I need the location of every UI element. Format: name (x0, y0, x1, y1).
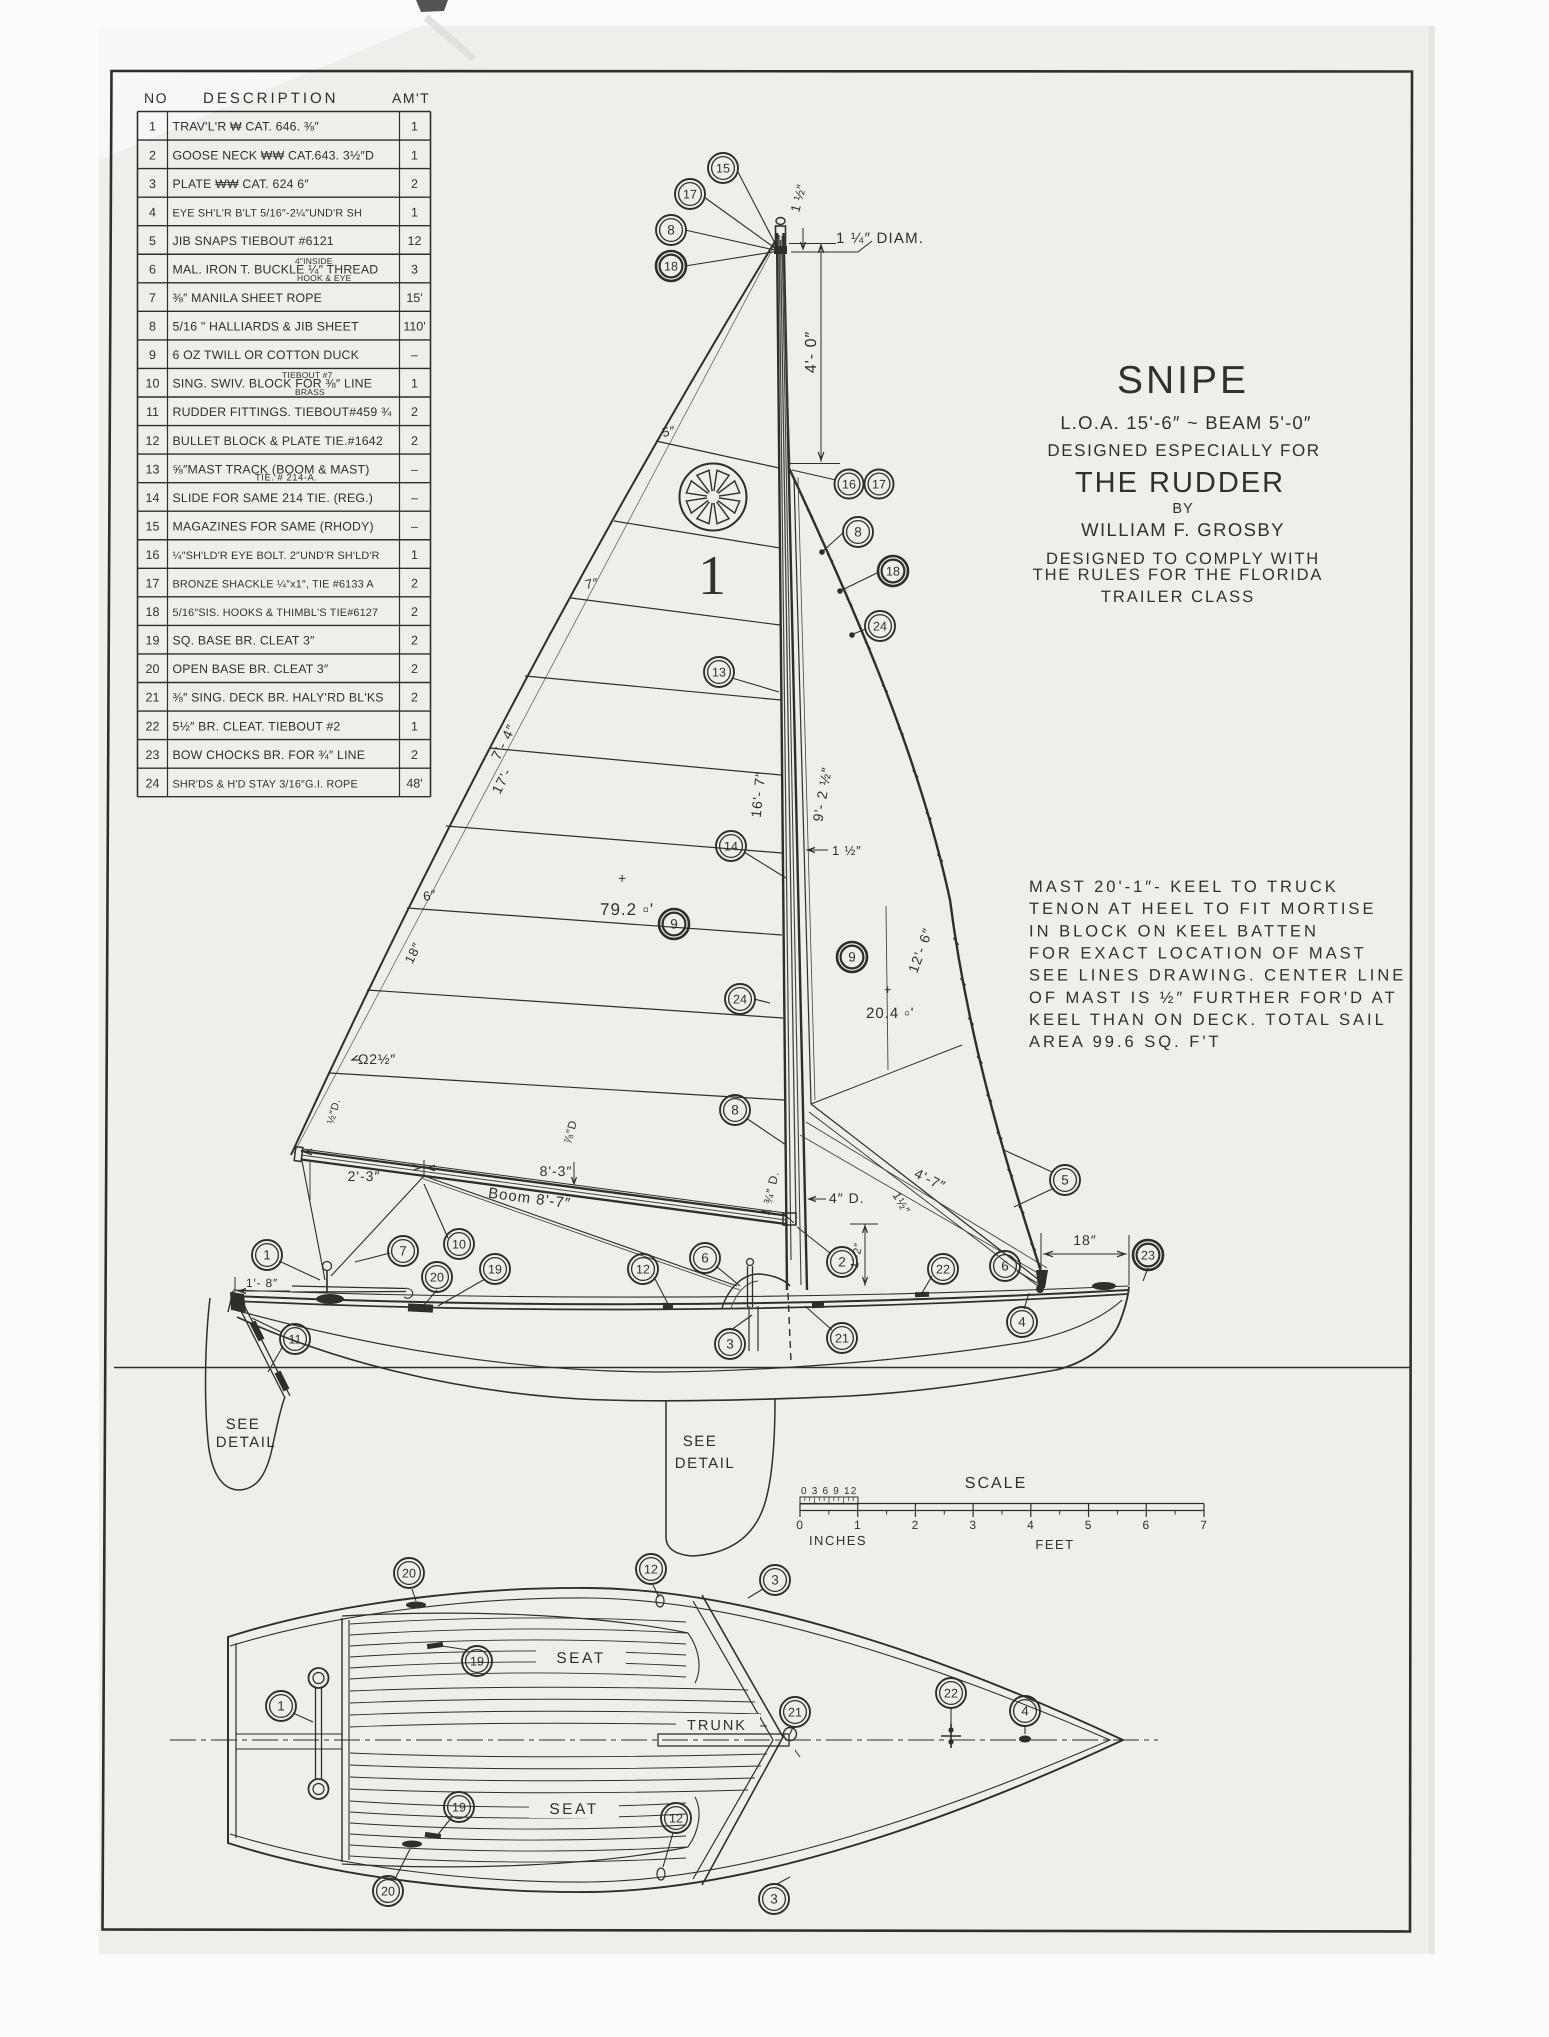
svg-text:1: 1 (411, 548, 418, 562)
svg-text:5: 5 (1085, 1518, 1092, 1532)
svg-text:SEE LINES DRAWING. CENTER LINE: SEE LINES DRAWING. CENTER LINE (1029, 967, 1406, 985)
svg-text:8: 8 (149, 320, 156, 334)
svg-text:19: 19 (470, 1655, 484, 1669)
svg-text:3: 3 (149, 177, 156, 191)
svg-text:8: 8 (667, 223, 675, 238)
svg-text:2: 2 (838, 1255, 846, 1270)
svg-text:21: 21 (146, 691, 160, 705)
svg-text:18: 18 (886, 565, 900, 579)
svg-text:14: 14 (146, 491, 160, 505)
svg-text:SING. SWIV. BLOCK FOR ⅜″ LINE: SING. SWIV. BLOCK FOR ⅜″ LINE (173, 377, 373, 391)
svg-text:23: 23 (146, 748, 160, 762)
svg-text:TRUNK: TRUNK (687, 1718, 747, 1734)
svg-text:1 ½″: 1 ½″ (832, 843, 862, 858)
svg-text:9: 9 (670, 917, 678, 932)
svg-text:FEET: FEET (1035, 1537, 1074, 1552)
svg-text:BOW CHOCKS BR. FOR ¾″ LINE: BOW CHOCKS BR. FOR ¾″ LINE (173, 748, 366, 762)
svg-text:DETAIL: DETAIL (216, 1434, 276, 1451)
svg-text:AREA 99.6 SQ. F'T: AREA 99.6 SQ. F'T (1029, 1033, 1222, 1051)
svg-text:6: 6 (149, 262, 156, 276)
svg-text:5″: 5″ (661, 423, 677, 440)
svg-text:24: 24 (873, 620, 887, 634)
svg-text:2: 2 (411, 405, 418, 419)
svg-text:MAST 20'-1″- KEEL TO TRUCK: MAST 20'-1″- KEEL TO TRUCK (1029, 878, 1339, 896)
svg-text:SHR'DS & H'D STAY 3/16″G.I. RO: SHR'DS & H'D STAY 3/16″G.I. ROPE (173, 778, 358, 790)
svg-text:13: 13 (146, 462, 160, 476)
svg-text:L.O.A. 15'-6″ ~ BEAM 5'-0″: L.O.A. 15'-6″ ~ BEAM 5'-0″ (1060, 412, 1311, 433)
svg-text:1: 1 (149, 120, 156, 134)
svg-text:MAGAZINES FOR SAME (RHODY): MAGAZINES FOR SAME (RHODY) (173, 519, 374, 533)
svg-text:2: 2 (411, 691, 418, 705)
svg-text:WILLIAM F. GROSBY: WILLIAM F. GROSBY (1081, 519, 1285, 540)
svg-text:2: 2 (411, 434, 418, 448)
svg-text:⅜″ SING. DECK BR. HALY'RD BL'K: ⅜″ SING. DECK BR. HALY'RD BL'KS (173, 691, 384, 705)
svg-text:DETAIL: DETAIL (675, 1455, 735, 1472)
svg-text:⅜″ MANILA SHEET ROPE: ⅜″ MANILA SHEET ROPE (173, 291, 323, 305)
svg-text:IN BLOCK ON KEEL BATTEN: IN BLOCK ON KEEL BATTEN (1029, 922, 1319, 940)
svg-text:20: 20 (381, 1885, 395, 1899)
svg-text:18: 18 (664, 260, 678, 274)
svg-text:19: 19 (146, 634, 160, 648)
svg-text:15: 15 (146, 519, 160, 533)
svg-text:11: 11 (146, 405, 159, 419)
svg-text:21: 21 (835, 1332, 849, 1346)
svg-text:Ω2½″: Ω2½″ (358, 1051, 396, 1067)
svg-text:8'-3″: 8'-3″ (540, 1163, 573, 1179)
svg-text:SEE: SEE (226, 1416, 261, 1433)
svg-text:TIE. # 214-A.: TIE. # 214-A. (255, 473, 317, 484)
svg-text:15: 15 (716, 162, 730, 176)
svg-text:10: 10 (452, 1238, 466, 1252)
svg-text:1: 1 (854, 1518, 861, 1532)
svg-text:KEEL THAN ON DECK. TOTAL SAIL: KEEL THAN ON DECK. TOTAL SAIL (1029, 1011, 1387, 1029)
svg-text:16: 16 (146, 548, 160, 562)
svg-text:9: 9 (848, 950, 856, 965)
svg-text:4: 4 (1027, 1518, 1034, 1532)
svg-text:2: 2 (411, 605, 418, 619)
svg-text:TRAV'L'R ₩ CAT. 646. ⅜″: TRAV'L'R ₩ CAT. 646. ⅜″ (173, 120, 320, 134)
svg-text:TRAILER CLASS: TRAILER CLASS (1101, 588, 1255, 606)
svg-text:–: – (411, 462, 418, 476)
svg-text:20: 20 (146, 662, 160, 676)
svg-text:3: 3 (726, 1337, 734, 1352)
svg-text:SCALE: SCALE (965, 1475, 1027, 1492)
svg-text:1: 1 (698, 545, 726, 607)
svg-text:19: 19 (488, 1263, 502, 1277)
svg-text:THE RULES FOR THE FLORIDA: THE RULES FOR THE FLORIDA (1033, 566, 1323, 584)
svg-text:HOOK & EYE: HOOK & EYE (297, 273, 352, 283)
svg-text:5: 5 (1061, 1173, 1069, 1188)
svg-text:DESIGNED ESPECIALLY FOR: DESIGNED ESPECIALLY FOR (1047, 441, 1320, 460)
svg-text:2: 2 (149, 148, 156, 162)
svg-text:7: 7 (1200, 1518, 1207, 1532)
svg-text:7″: 7″ (584, 575, 600, 592)
svg-text:12: 12 (636, 1263, 650, 1277)
svg-text:GOOSE NECK ₩₩ CAT.643. 3½″D: GOOSE NECK ₩₩ CAT.643. 3½″D (173, 148, 375, 162)
svg-text:INCHES: INCHES (809, 1533, 867, 1548)
svg-text:SEE: SEE (683, 1433, 718, 1450)
svg-text:PLATE ₩₩ CAT. 624 6″: PLATE ₩₩ CAT. 624 6″ (173, 177, 310, 191)
svg-text:+: + (884, 982, 892, 997)
svg-text:2: 2 (411, 662, 418, 676)
svg-text:1: 1 (411, 719, 418, 733)
svg-text:SEAT: SEAT (549, 1801, 598, 1818)
svg-text:5½″ BR. CLEAT. TIEBOUT #2: 5½″ BR. CLEAT. TIEBOUT #2 (173, 719, 341, 733)
svg-text:2: 2 (912, 1518, 919, 1532)
svg-text:22: 22 (944, 1687, 958, 1701)
svg-text:2'-3″: 2'-3″ (348, 1168, 381, 1184)
svg-text:12: 12 (644, 1563, 658, 1577)
svg-text:THE RUDDER: THE RUDDER (1075, 467, 1285, 499)
svg-text:24: 24 (146, 776, 160, 790)
svg-text:DESCRIPTION: DESCRIPTION (203, 90, 339, 107)
svg-text:17: 17 (872, 478, 886, 492)
svg-text:7: 7 (399, 1244, 407, 1259)
svg-text:+: + (618, 870, 627, 886)
svg-text:17: 17 (146, 577, 160, 591)
svg-text:12: 12 (408, 234, 422, 248)
svg-text:23: 23 (1141, 1249, 1155, 1263)
svg-text:SEAT: SEAT (556, 1650, 605, 1667)
svg-text:2: 2 (411, 634, 418, 648)
svg-text:–: – (411, 491, 418, 505)
svg-text:2: 2 (411, 748, 418, 762)
svg-text:22: 22 (936, 1263, 950, 1277)
svg-text:20.4 ▫': 20.4 ▫' (866, 1005, 915, 1022)
svg-text:9: 9 (149, 348, 156, 362)
svg-text:FOR EXACT LOCATION OF MAST: FOR EXACT LOCATION OF MAST (1029, 944, 1367, 962)
svg-text:1: 1 (411, 377, 418, 391)
svg-text:18: 18 (146, 605, 160, 619)
svg-text:15': 15' (406, 291, 422, 305)
svg-text:24: 24 (733, 993, 747, 1007)
svg-text:20: 20 (430, 1271, 444, 1285)
svg-text:10: 10 (146, 377, 160, 391)
svg-text:48': 48' (406, 776, 422, 790)
svg-text:2: 2 (411, 577, 418, 591)
svg-text:12: 12 (669, 1812, 683, 1826)
svg-text:1'- 8″: 1'- 8″ (246, 1276, 278, 1290)
svg-text:SNIPE: SNIPE (1117, 359, 1249, 402)
svg-text:8: 8 (854, 525, 862, 540)
svg-text:6: 6 (701, 1251, 709, 1266)
svg-text:8: 8 (731, 1103, 739, 1118)
svg-text:BRASS: BRASS (295, 387, 325, 397)
svg-text:BULLET BLOCK & PLATE TIE.#164: BULLET BLOCK & PLATE TIE.#1642 (173, 434, 383, 448)
svg-text:4'- 0″: 4'- 0″ (803, 331, 820, 373)
svg-text:SQ. BASE BR. CLEAT 3″: SQ. BASE BR. CLEAT 3″ (173, 634, 315, 648)
svg-text:5/16″SIS. HOOKS & THIMBL'S TIE: 5/16″SIS. HOOKS & THIMBL'S TIE#6127 (173, 607, 379, 619)
svg-text:18″: 18″ (1073, 1232, 1097, 1248)
svg-text:BRONZE SHACKLE ¼″x1″, TIE #613: BRONZE SHACKLE ¼″x1″, TIE #6133 A (173, 579, 375, 591)
svg-text:4: 4 (1021, 1704, 1029, 1719)
svg-text:3: 3 (771, 1573, 779, 1588)
svg-text:–: – (411, 519, 418, 533)
svg-text:EYE SH'L'R B'LT 5/16″-2¼″UND'R: EYE SH'L'R B'LT 5/16″-2¼″UND'R SH (173, 207, 363, 219)
svg-text:17: 17 (683, 188, 697, 202)
svg-text:1: 1 (411, 148, 418, 162)
svg-text:20: 20 (402, 1567, 416, 1581)
svg-text:0 3 6 9 12: 0 3 6 9 12 (801, 1486, 857, 1497)
svg-text:21: 21 (788, 1706, 802, 1720)
svg-text:–: – (411, 348, 418, 362)
svg-text:5: 5 (149, 234, 156, 248)
svg-text:¼″SH'LD'R EYE BOLT. 2″UND'R SH: ¼″SH'LD'R EYE BOLT. 2″UND'R SH'LD'R (173, 550, 380, 562)
svg-text:5/16 ʺ HALLIARDS & JIB SHEET: 5/16 ʺ HALLIARDS & JIB SHEET (173, 320, 360, 334)
svg-text:4: 4 (149, 205, 156, 219)
svg-text:12: 12 (146, 434, 160, 448)
svg-text:NO: NO (144, 90, 168, 106)
svg-text:RUDDER FITTINGS. TIEBOUT#459 ¾: RUDDER FITTINGS. TIEBOUT#459 ¾ (173, 405, 393, 419)
svg-text:1: 1 (411, 120, 418, 134)
svg-text:BY: BY (1172, 501, 1193, 517)
svg-text:4: 4 (1018, 1315, 1026, 1330)
svg-text:6: 6 (1001, 1259, 1009, 1274)
svg-text:19: 19 (452, 1801, 466, 1815)
svg-text:16: 16 (842, 478, 856, 492)
svg-text:6: 6 (1143, 1518, 1150, 1532)
svg-text:4″ D.: 4″ D. (829, 1190, 865, 1206)
svg-text:0: 0 (796, 1518, 803, 1532)
svg-text:3: 3 (770, 1892, 778, 1907)
svg-text:1: 1 (277, 1699, 285, 1714)
svg-text:1: 1 (411, 205, 418, 219)
svg-text:14: 14 (724, 840, 738, 854)
svg-text:SLIDE FOR SAME 214 TIE. (REG.: SLIDE FOR SAME 214 TIE. (REG.) (173, 491, 374, 505)
svg-text:3: 3 (411, 262, 418, 276)
svg-text:110': 110' (403, 320, 425, 334)
svg-text:6″: 6″ (422, 887, 438, 904)
svg-text:2: 2 (411, 177, 418, 191)
svg-text:79.2 ▫': 79.2 ▫' (600, 900, 654, 919)
svg-text:11: 11 (289, 1333, 302, 1347)
svg-text:OF MAST IS ½″ FURTHER FOR'D AT: OF MAST IS ½″ FURTHER FOR'D AT (1029, 989, 1398, 1007)
svg-text:6 OZ TWILL OR COTTON DUCK: 6 OZ TWILL OR COTTON DUCK (173, 348, 360, 362)
svg-text:1: 1 (263, 1248, 271, 1263)
svg-text:JIB SNAPS TIEBOUT #6121: JIB SNAPS TIEBOUT #6121 (173, 234, 334, 248)
svg-text:7: 7 (149, 291, 156, 305)
svg-text:OPEN BASE BR. CLEAT 3″: OPEN BASE BR. CLEAT 3″ (173, 662, 329, 676)
svg-text:AM'T: AM'T (392, 90, 430, 106)
svg-text:1 ¼″ DIAM.: 1 ¼″ DIAM. (836, 230, 924, 247)
svg-text:TENON AT HEEL TO FIT MORTISE: TENON AT HEEL TO FIT MORTISE (1029, 900, 1376, 918)
svg-text:3: 3 (969, 1518, 976, 1532)
svg-text:22: 22 (146, 719, 160, 733)
svg-text:TIEBOUT #7: TIEBOUT #7 (282, 370, 333, 380)
svg-text:13: 13 (712, 666, 726, 680)
svg-text:4″INSIDE: 4″INSIDE (295, 256, 333, 266)
